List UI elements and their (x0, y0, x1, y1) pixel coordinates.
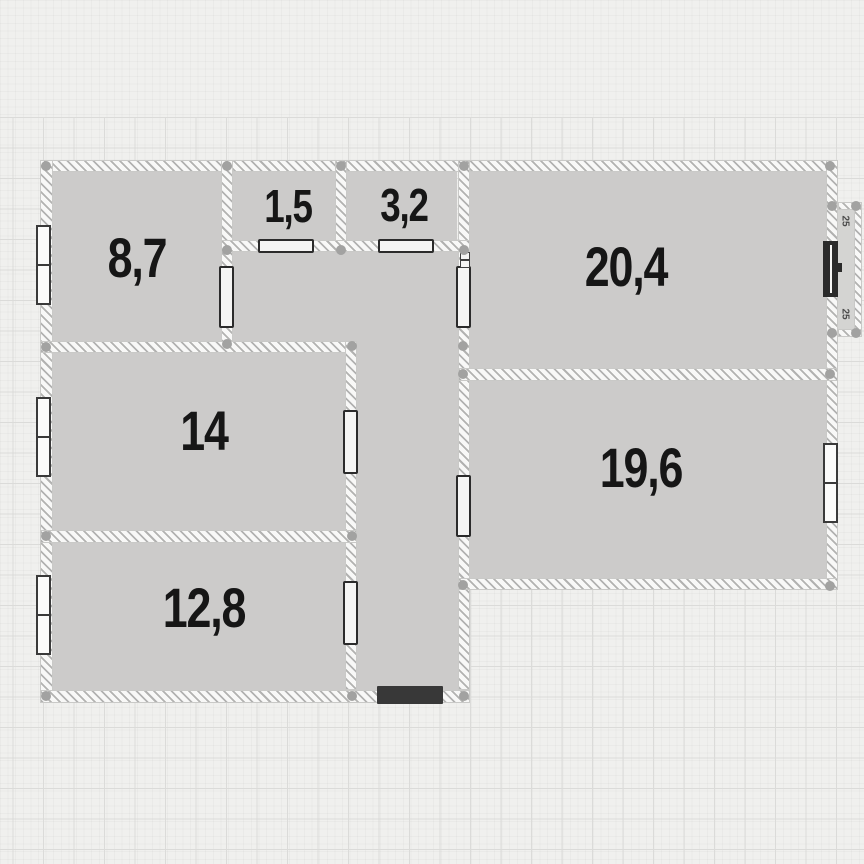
wall-joint-dot (825, 161, 835, 171)
wall-balcony-right (854, 202, 862, 337)
window-14 (36, 397, 51, 477)
balcony-window-handle (838, 263, 842, 272)
door-19-6 (456, 475, 471, 537)
balcony-dim-top: 25 (840, 215, 851, 226)
wall-joint-dot (825, 581, 835, 591)
wall-joint-dot (459, 161, 469, 171)
wall-joint-dot (851, 201, 861, 211)
wall-joint-dot (222, 245, 232, 255)
window-8-7 (36, 225, 51, 305)
wall-14-12-8-divider (40, 530, 357, 543)
floor-plan-canvas: 8,7 1,5 3,2 20,4 14 19,6 12,8 25 25 (0, 0, 864, 864)
wall-outer-top (40, 160, 838, 172)
wall-joint-dot (41, 691, 51, 701)
wall-8-7-14-divider (40, 341, 357, 353)
door-1-5 (258, 239, 314, 253)
wall-joint-dot (459, 691, 469, 701)
wall-joint-dot (347, 691, 357, 701)
balcony-window-slit (830, 245, 832, 293)
window-divider (825, 482, 836, 484)
room-label-19-6: 19,6 (600, 440, 682, 496)
room-label-14: 14 (180, 403, 227, 459)
wall-joint-dot (459, 245, 469, 255)
wall-joint-dot (336, 245, 346, 255)
wall-joint-dot (347, 531, 357, 541)
door-20-4 (456, 266, 471, 328)
window-12-8 (36, 575, 51, 655)
window-divider (38, 264, 49, 266)
hinge-divider-line (461, 259, 469, 261)
wall-joint-dot (41, 161, 51, 171)
wall-joint-dot (827, 328, 837, 338)
balcony-dim-bottom: 25 (840, 308, 851, 319)
wall-20-4-19-6-divider (458, 368, 838, 381)
wall-joint-dot (41, 342, 51, 352)
door-3-2 (378, 239, 434, 253)
hallway-top (233, 252, 458, 341)
window-divider (38, 614, 49, 616)
door-14 (343, 410, 358, 474)
window-19-6 (823, 443, 838, 523)
room-label-8-7: 8,7 (108, 230, 167, 286)
wall-joint-dot (222, 339, 232, 349)
room-label-20-4: 20,4 (585, 239, 667, 295)
wall-19-6-bottom (458, 578, 838, 590)
door-12-8 (343, 581, 358, 645)
room-label-3-2: 3,2 (380, 182, 428, 228)
balcony-window (823, 241, 838, 297)
wall-joint-dot (851, 328, 861, 338)
wall-joint-dot (41, 531, 51, 541)
wall-joint-dot (458, 369, 468, 379)
wall-1-5-3-2-divider (335, 160, 347, 252)
wall-joint-dot (825, 369, 835, 379)
wall-joint-dot (827, 201, 837, 211)
door-8-7 (219, 266, 234, 328)
wall-joint-dot (458, 341, 468, 351)
room-label-1-5: 1,5 (264, 183, 312, 229)
hallway-corridor (357, 341, 458, 690)
room-label-12-8: 12,8 (163, 580, 245, 636)
wall-joint-dot (222, 161, 232, 171)
entrance-door (377, 686, 443, 704)
wall-joint-dot (347, 341, 357, 351)
wall-joint-dot (458, 580, 468, 590)
wall-joint-dot (336, 161, 346, 171)
window-divider (38, 436, 49, 438)
